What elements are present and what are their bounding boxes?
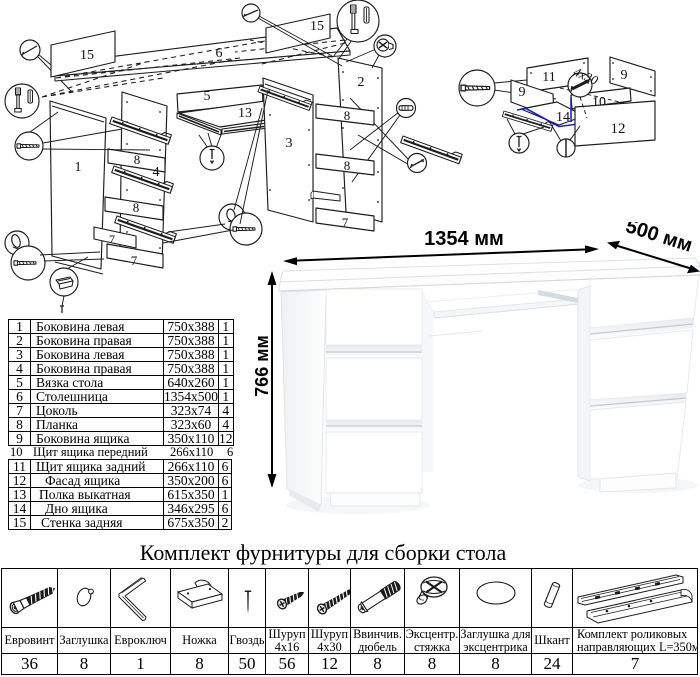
svg-text:7: 7 (109, 232, 115, 246)
svg-text:8: 8 (133, 200, 140, 215)
svg-text:8: 8 (344, 108, 351, 123)
svg-text:15: 15 (80, 48, 94, 63)
svg-text:5: 5 (204, 89, 211, 104)
svg-text:15: 15 (310, 19, 324, 34)
svg-text:2: 2 (358, 75, 365, 90)
svg-text:11: 11 (542, 70, 555, 85)
svg-text:12: 12 (611, 121, 626, 137)
svg-text:9: 9 (519, 85, 526, 100)
svg-text:9: 9 (621, 68, 628, 83)
svg-text:1354 мм: 1354 мм (424, 228, 504, 250)
svg-text:8: 8 (344, 158, 351, 173)
svg-text:14: 14 (556, 110, 570, 125)
svg-text:3: 3 (286, 136, 293, 151)
svg-text:766 мм: 766 мм (252, 335, 272, 397)
svg-text:1: 1 (75, 160, 82, 175)
svg-text:4: 4 (153, 165, 160, 180)
svg-text:7: 7 (131, 253, 138, 268)
svg-text:13: 13 (238, 106, 252, 121)
svg-text:6: 6 (216, 46, 223, 61)
svg-text:8: 8 (134, 152, 141, 167)
